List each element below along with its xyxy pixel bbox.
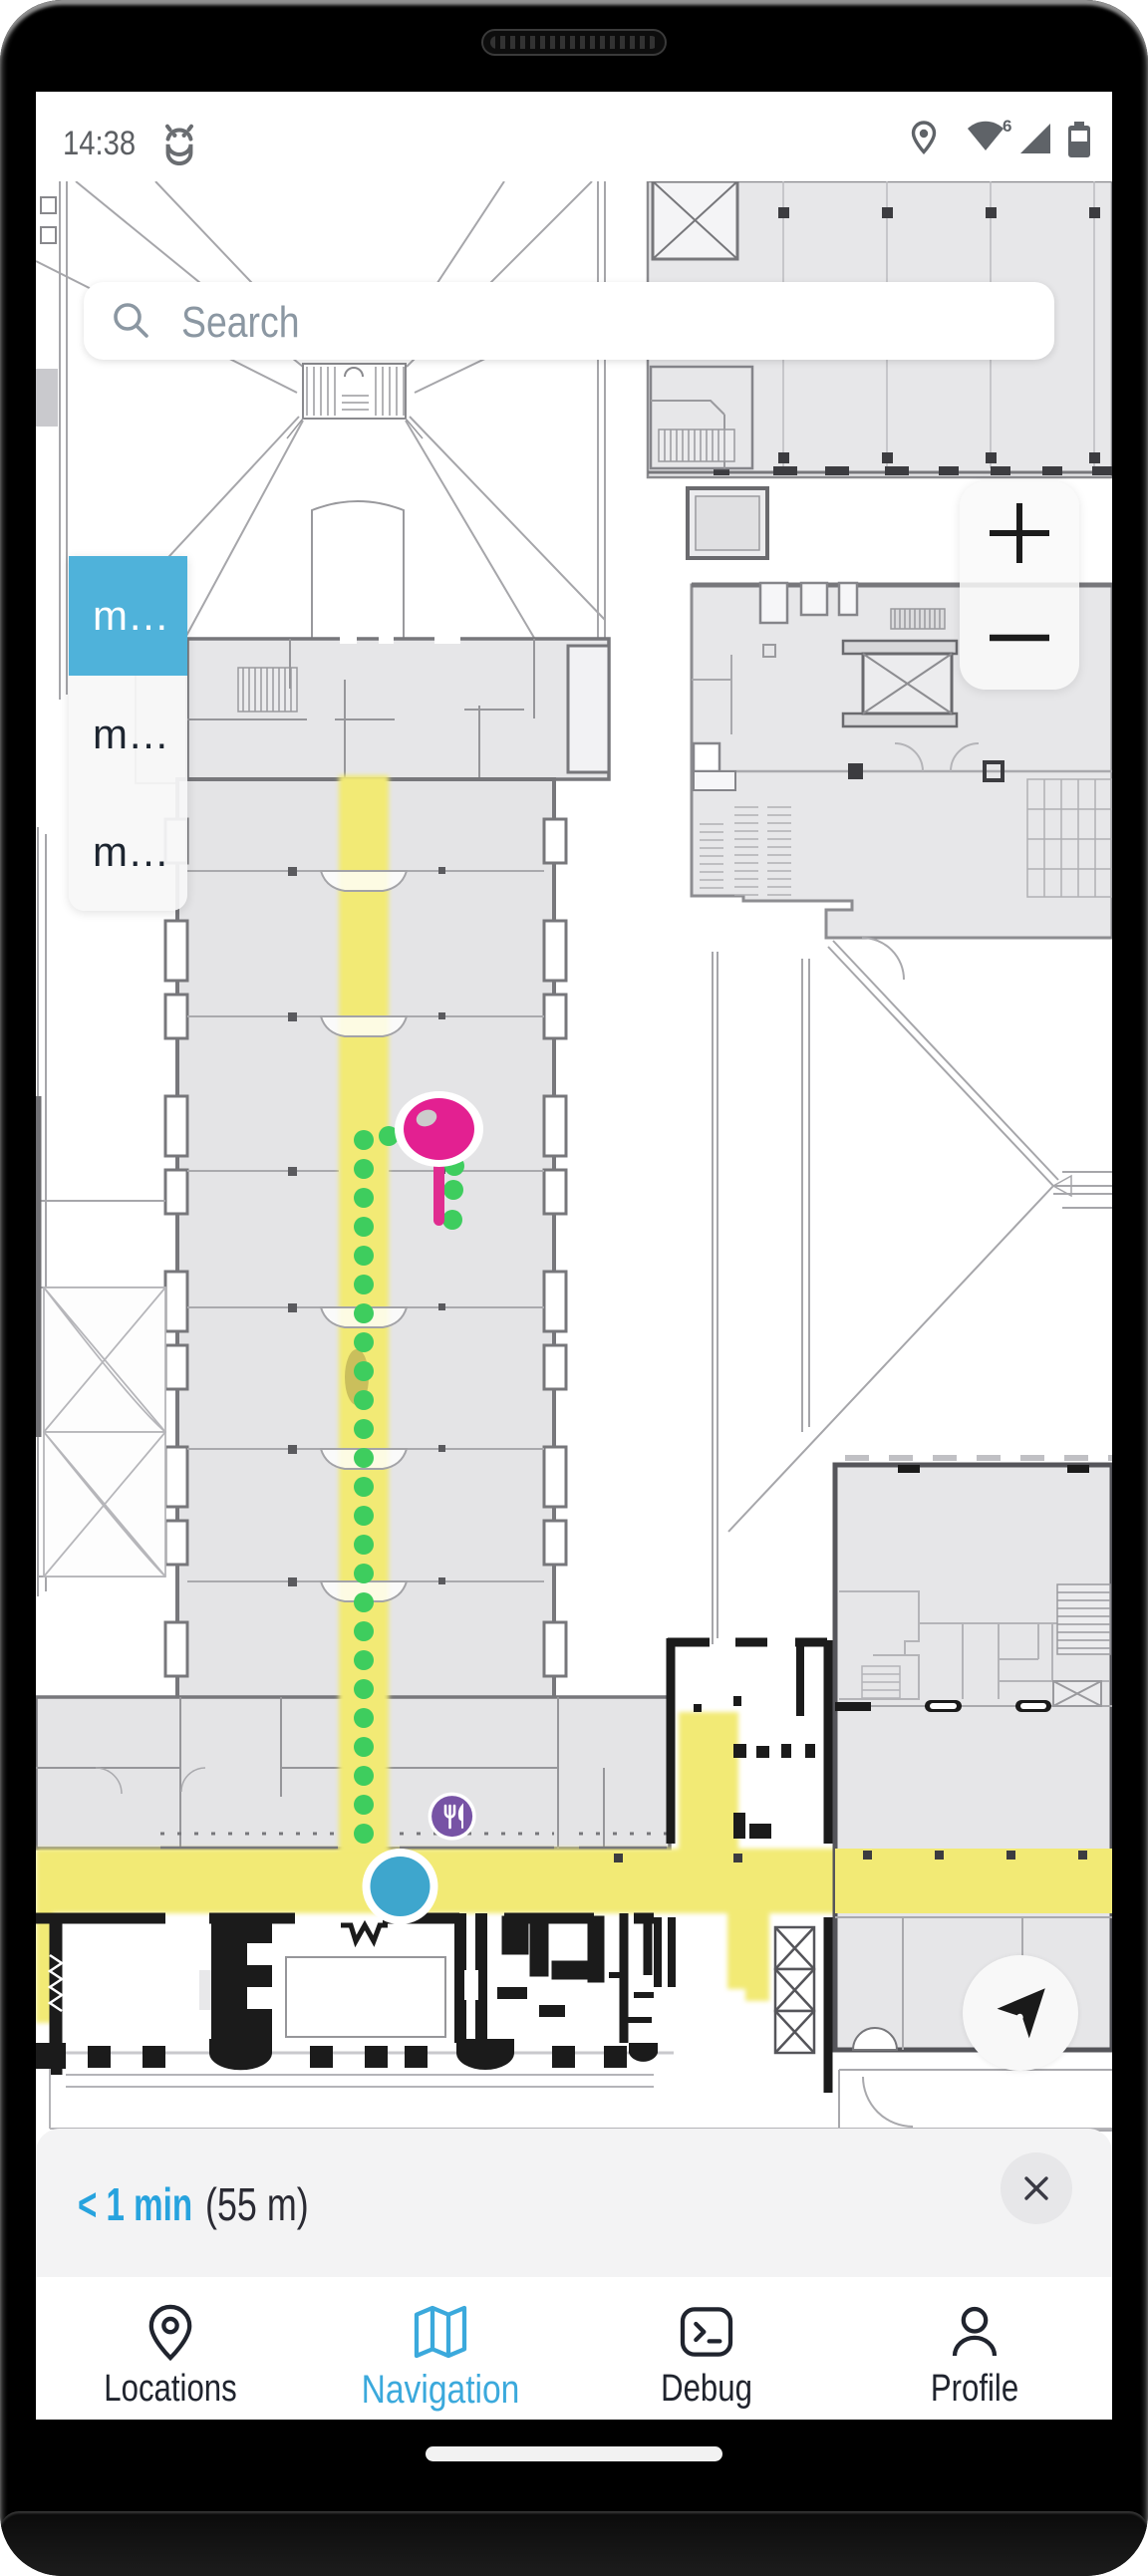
svg-text:6: 6 xyxy=(1003,118,1011,136)
